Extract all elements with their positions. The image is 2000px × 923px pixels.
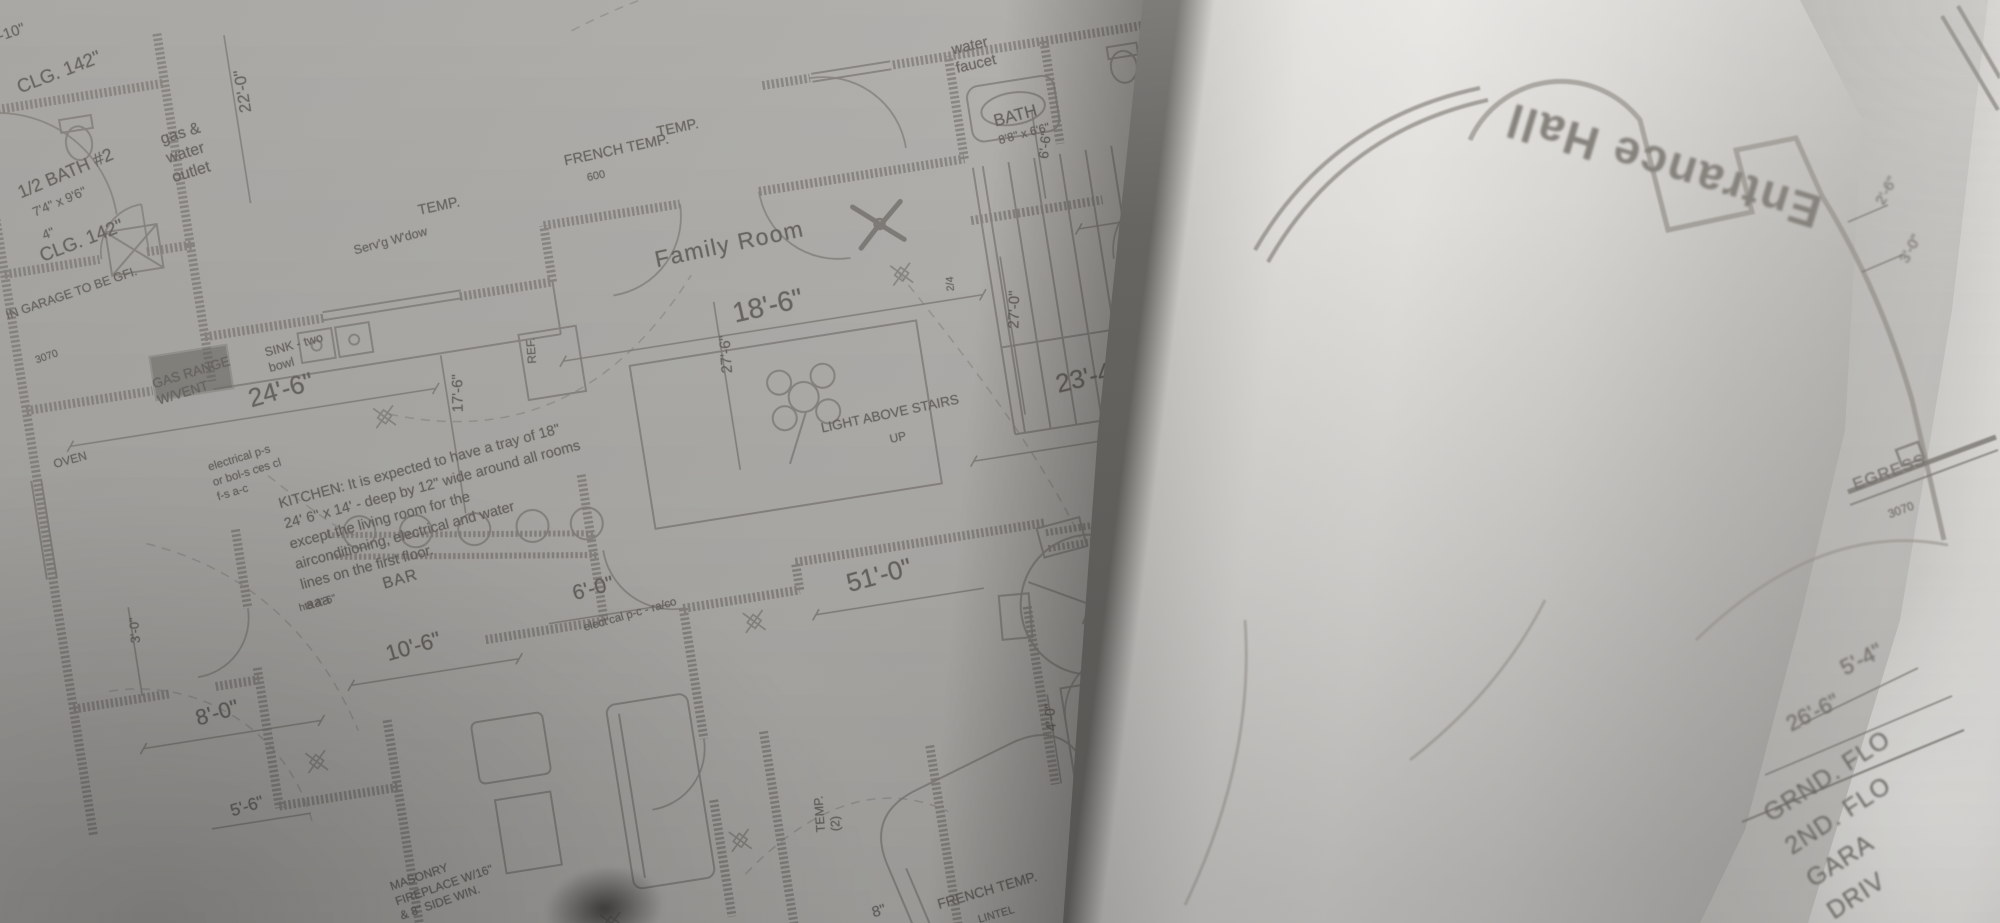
- sheet-label: EGRESS: [1850, 450, 1929, 495]
- sheet-label: 3'-0": [1896, 232, 1926, 267]
- sheet-label: 26'-6": [1782, 689, 1844, 738]
- sheet-labels: 2'-6"3'-0"EGRESS30705'-4"26'-6": [0, 0, 2000, 923]
- sheet-label: 3070: [1886, 499, 1916, 522]
- blueprint-photo: -10"CLG. 142"1/2 BATH #27'4" x 9'6"4"CLG…: [0, 0, 2000, 923]
- sheet-label: 2'-6": [1872, 174, 1902, 209]
- sheet-label: 5'-4": [1836, 638, 1887, 681]
